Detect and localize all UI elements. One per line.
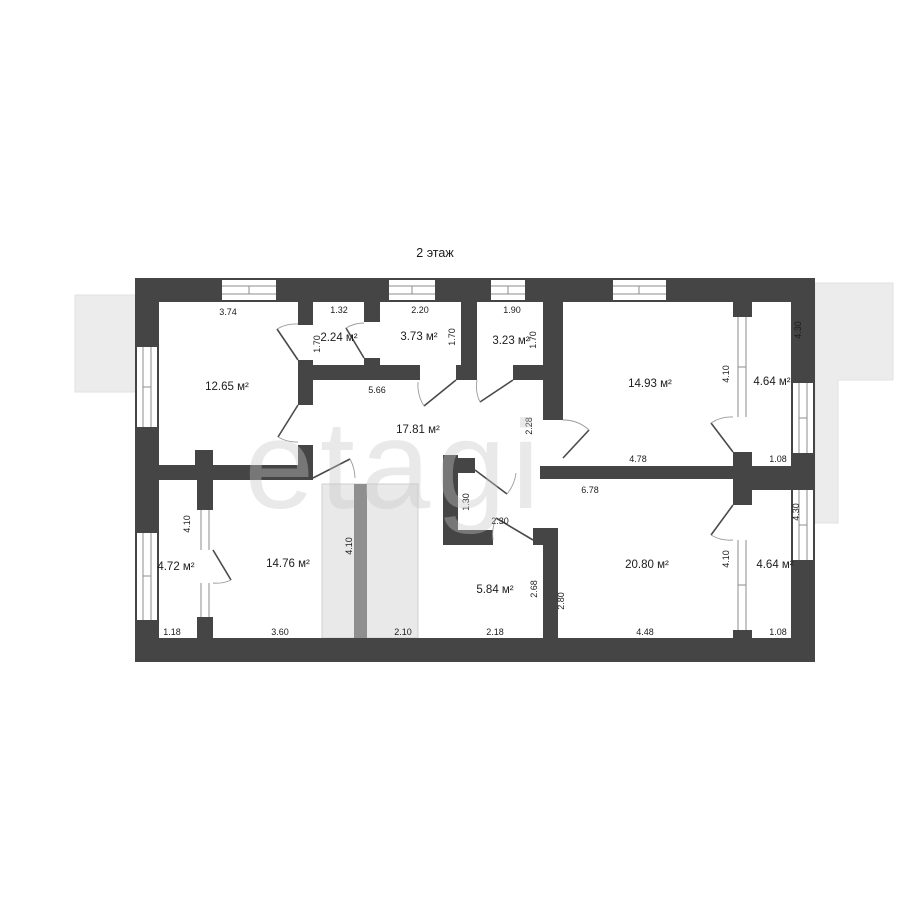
dimension-label: 2.18 bbox=[486, 627, 504, 637]
dimension-label: 1.18 bbox=[163, 627, 181, 637]
wall-segment bbox=[733, 630, 752, 638]
wall-segment bbox=[313, 365, 420, 380]
window bbox=[389, 280, 435, 300]
balcony-window bbox=[733, 317, 752, 417]
wall-segment bbox=[195, 450, 213, 465]
dimension-label: 1.08 bbox=[769, 454, 787, 464]
wall-segment bbox=[513, 365, 563, 380]
dimension-label: 4.48 bbox=[636, 627, 654, 637]
room-label: 5.84 м² bbox=[476, 584, 513, 596]
dimension-label: 1.70 bbox=[447, 328, 457, 346]
wall-segment bbox=[364, 358, 380, 365]
dimension-label: 4.78 bbox=[629, 454, 647, 464]
room-label: 14.76 м² bbox=[266, 558, 310, 570]
dimension-label: 1.08 bbox=[769, 627, 787, 637]
floor-plan-canvas: 2 этаж bbox=[0, 0, 900, 900]
dimension-label: 4.10 bbox=[721, 550, 731, 568]
dimension-label: 4.10 bbox=[182, 515, 192, 533]
room-label: 3.73 м² bbox=[400, 331, 437, 343]
window bbox=[613, 280, 666, 300]
room-label: 12.65 м² bbox=[205, 381, 249, 393]
dimension-label: 4.30 bbox=[791, 503, 801, 521]
dimension-label: 1.90 bbox=[503, 305, 521, 315]
dimension-label: 2.20 bbox=[411, 305, 429, 315]
room-label: 4.64 м² bbox=[756, 559, 793, 571]
dimension-label: 3.74 bbox=[219, 307, 237, 317]
wall-segment bbox=[543, 302, 563, 420]
room-label: 3.23 м² bbox=[492, 335, 529, 347]
window bbox=[222, 280, 276, 300]
watermark: etagi bbox=[244, 396, 545, 535]
dimension-label: 3.60 bbox=[271, 627, 289, 637]
page-title: 2 этаж bbox=[416, 246, 454, 260]
wall-segment bbox=[733, 302, 752, 317]
window bbox=[491, 280, 525, 300]
dimension-label: 1.70 bbox=[528, 331, 538, 349]
dimension-label: 4.30 bbox=[793, 321, 803, 339]
room-label: 20.80 м² bbox=[625, 559, 669, 571]
dimension-label: 5.66 bbox=[368, 385, 386, 395]
balcony-window bbox=[197, 583, 213, 617]
room-label: 4.64 м² bbox=[753, 376, 790, 388]
wall-segment bbox=[461, 302, 477, 365]
wall-segment bbox=[543, 545, 558, 638]
dimension-label: 4.10 bbox=[344, 537, 354, 555]
outer-wall-bottom bbox=[135, 638, 815, 662]
dimension-label: 1.70 bbox=[312, 335, 322, 353]
wall-segment bbox=[364, 302, 380, 322]
outside-area-left bbox=[75, 295, 137, 392]
wall-segment bbox=[197, 617, 213, 638]
window bbox=[137, 533, 157, 620]
balcony-window bbox=[197, 510, 213, 550]
room-label: 2.24 м² bbox=[320, 332, 357, 344]
balcony-window bbox=[733, 540, 752, 630]
dimension-label: 1.32 bbox=[330, 305, 348, 315]
room-label: 14.93 м² bbox=[628, 378, 672, 390]
dimension-label: 6.78 bbox=[581, 485, 599, 495]
window bbox=[793, 490, 813, 560]
wall-segment bbox=[298, 302, 313, 325]
wall-segment bbox=[540, 466, 735, 479]
outside-area-right bbox=[815, 283, 893, 523]
dimension-label: 2.68 bbox=[529, 580, 539, 598]
window bbox=[793, 383, 813, 453]
window bbox=[137, 347, 157, 427]
wall-segment bbox=[752, 466, 815, 490]
dimension-label: 2.80 bbox=[556, 592, 566, 610]
dimension-label: 2.10 bbox=[394, 627, 412, 637]
wall-segment bbox=[197, 480, 213, 510]
floor-plan-page: 2 этаж bbox=[0, 0, 900, 900]
wall-segment bbox=[456, 365, 477, 380]
wall-segment bbox=[733, 452, 752, 505]
room-label: 4.72 м² bbox=[157, 561, 194, 573]
dimension-label: 4.10 bbox=[721, 365, 731, 383]
